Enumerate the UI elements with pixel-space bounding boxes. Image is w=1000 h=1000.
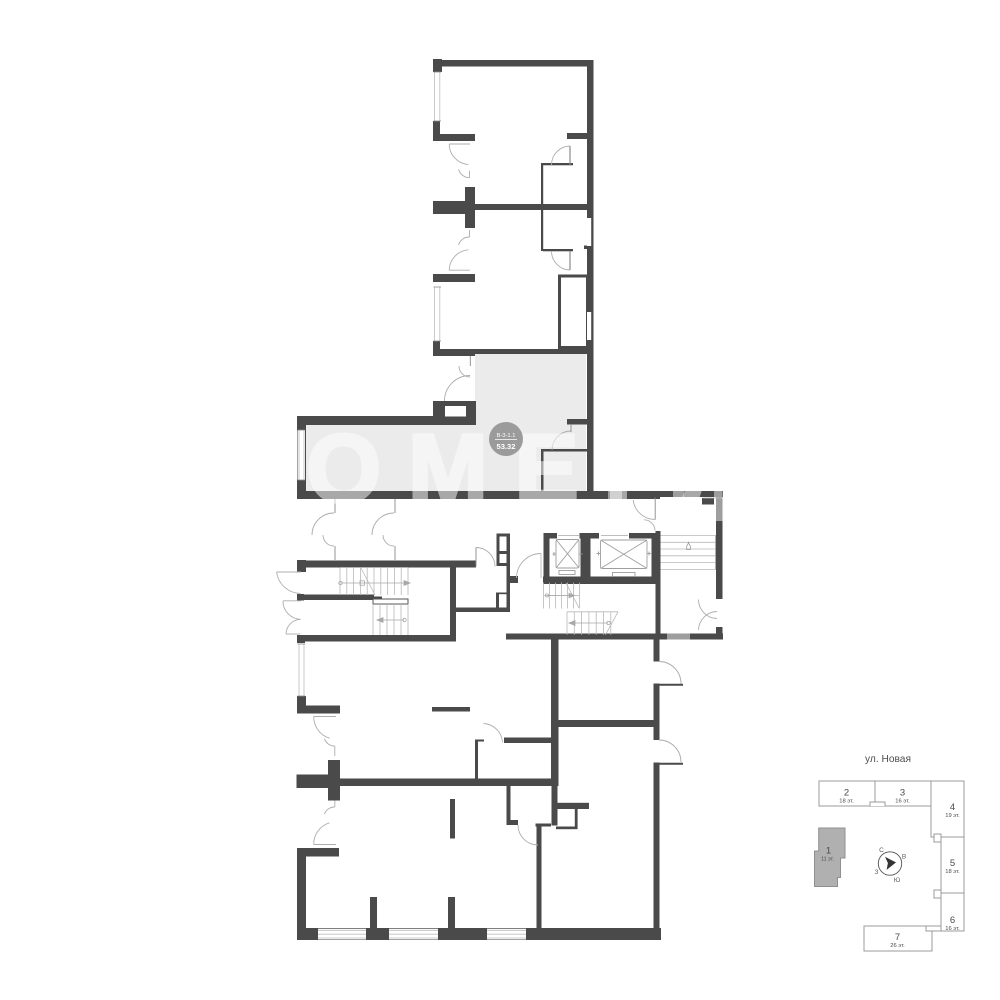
svg-text:З: З bbox=[875, 869, 879, 876]
svg-text:18 эт.: 18 эт. bbox=[945, 869, 960, 875]
svg-text:1: 1 bbox=[826, 846, 831, 857]
svg-text:3: 3 bbox=[900, 788, 905, 799]
svg-text:В-3-1.1: В-3-1.1 bbox=[496, 433, 515, 439]
svg-text:В: В bbox=[902, 854, 906, 861]
svg-text:ОМЕГА: ОМЕГА bbox=[306, 414, 776, 523]
svg-text:11 эт.: 11 эт. bbox=[821, 857, 834, 863]
svg-text:5: 5 bbox=[950, 858, 955, 869]
svg-text:26 эт.: 26 эт. bbox=[890, 943, 905, 949]
svg-text:4: 4 bbox=[950, 802, 955, 813]
svg-text:53.32: 53.32 bbox=[496, 442, 515, 451]
svg-text:16 эт.: 16 эт. bbox=[945, 926, 960, 932]
svg-text:18 эт.: 18 эт. bbox=[839, 799, 854, 805]
svg-text:7: 7 bbox=[895, 932, 900, 943]
svg-text:С: С bbox=[879, 847, 884, 854]
svg-text:6: 6 bbox=[950, 915, 955, 926]
svg-text:Ю: Ю bbox=[894, 877, 901, 884]
svg-text:2: 2 bbox=[844, 788, 849, 799]
svg-text:ул. Новая: ул. Новая bbox=[865, 754, 911, 765]
svg-text:19 эт.: 19 эт. bbox=[945, 813, 960, 819]
svg-text:16 эт.: 16 эт. bbox=[895, 799, 910, 805]
